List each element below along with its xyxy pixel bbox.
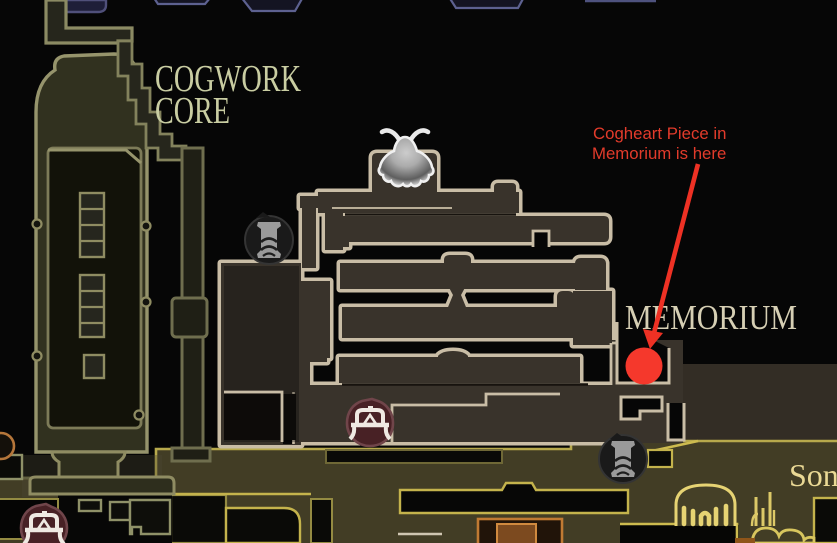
svg-text:CORE: CORE bbox=[155, 90, 230, 132]
svg-text:Son: Son bbox=[789, 457, 837, 493]
svg-text:Memorium is here: Memorium is here bbox=[592, 144, 726, 163]
svg-text:Cogheart Piece in: Cogheart Piece in bbox=[593, 124, 726, 143]
